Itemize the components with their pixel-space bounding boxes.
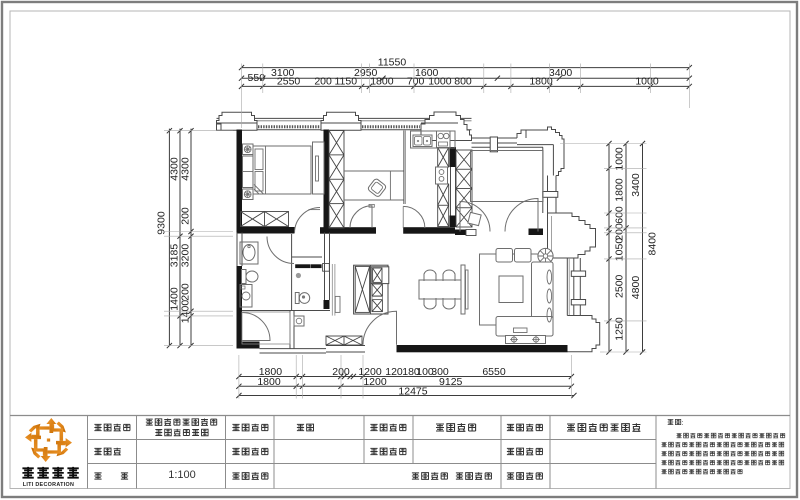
svg-text:1800: 1800 xyxy=(529,76,553,88)
svg-text:1000: 1000 xyxy=(635,76,659,88)
svg-text:4300: 4300 xyxy=(180,157,192,181)
svg-text:2500: 2500 xyxy=(614,274,626,298)
svg-text:1000: 1000 xyxy=(614,147,626,171)
svg-text:11550: 11550 xyxy=(378,56,407,68)
svg-text:1150: 1150 xyxy=(335,76,358,88)
svg-text:800: 800 xyxy=(454,76,472,88)
svg-text:1200: 1200 xyxy=(363,376,387,388)
svg-text:1800: 1800 xyxy=(257,376,281,388)
svg-text:120: 120 xyxy=(385,366,403,378)
svg-text:200: 200 xyxy=(180,283,192,301)
svg-text:12475: 12475 xyxy=(398,385,427,397)
svg-text:3400: 3400 xyxy=(630,173,642,197)
svg-text:1050: 1050 xyxy=(614,238,626,262)
svg-text:9125: 9125 xyxy=(439,376,463,388)
svg-text::: : xyxy=(682,420,684,427)
svg-text:1800: 1800 xyxy=(614,178,626,202)
svg-text:1:100: 1:100 xyxy=(168,469,196,481)
svg-text:1800: 1800 xyxy=(370,76,394,88)
svg-text:3200: 3200 xyxy=(180,244,192,268)
svg-text:200: 200 xyxy=(314,76,332,88)
svg-text:4800: 4800 xyxy=(630,276,642,300)
svg-text:LITI DECORATION: LITI DECORATION xyxy=(23,482,74,488)
svg-text:8400: 8400 xyxy=(647,232,659,256)
svg-text:600: 600 xyxy=(614,206,626,224)
svg-text:2550: 2550 xyxy=(277,76,301,88)
svg-text:9300: 9300 xyxy=(156,211,168,235)
svg-text:700: 700 xyxy=(407,76,425,88)
svg-text:200: 200 xyxy=(180,207,192,225)
svg-text:1000: 1000 xyxy=(428,76,452,88)
svg-text:6550: 6550 xyxy=(482,366,506,378)
